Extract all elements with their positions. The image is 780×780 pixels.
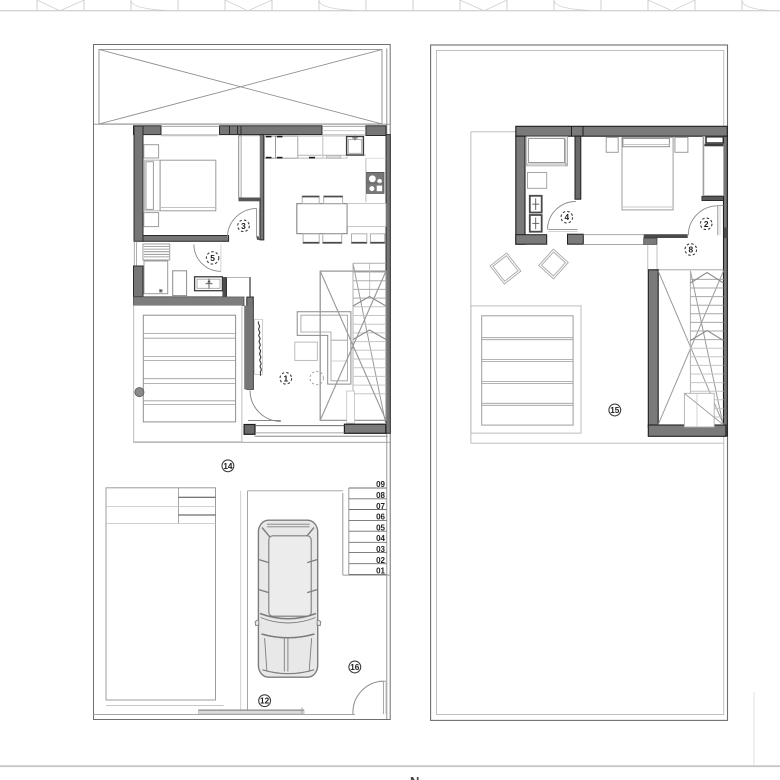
svg-text:N: N [410, 774, 419, 780]
svg-text:4: 4 [564, 212, 569, 222]
svg-text:07: 07 [376, 502, 385, 511]
svg-text:06: 06 [376, 513, 385, 522]
svg-text:15: 15 [610, 406, 620, 415]
svg-text:03: 03 [376, 545, 385, 554]
svg-text:2: 2 [704, 219, 709, 229]
svg-text:5: 5 [210, 253, 215, 263]
svg-text:05: 05 [376, 523, 385, 532]
svg-text:1: 1 [283, 373, 288, 383]
svg-text:3: 3 [241, 221, 246, 231]
svg-text:12: 12 [260, 697, 270, 706]
svg-text:09: 09 [376, 480, 385, 489]
svg-text:16: 16 [350, 663, 360, 672]
svg-text:01: 01 [376, 567, 385, 576]
svg-text:02: 02 [376, 556, 385, 565]
svg-text:08: 08 [376, 491, 385, 500]
svg-text:14: 14 [223, 462, 233, 471]
svg-text:8: 8 [688, 245, 693, 255]
svg-text:04: 04 [376, 534, 385, 543]
